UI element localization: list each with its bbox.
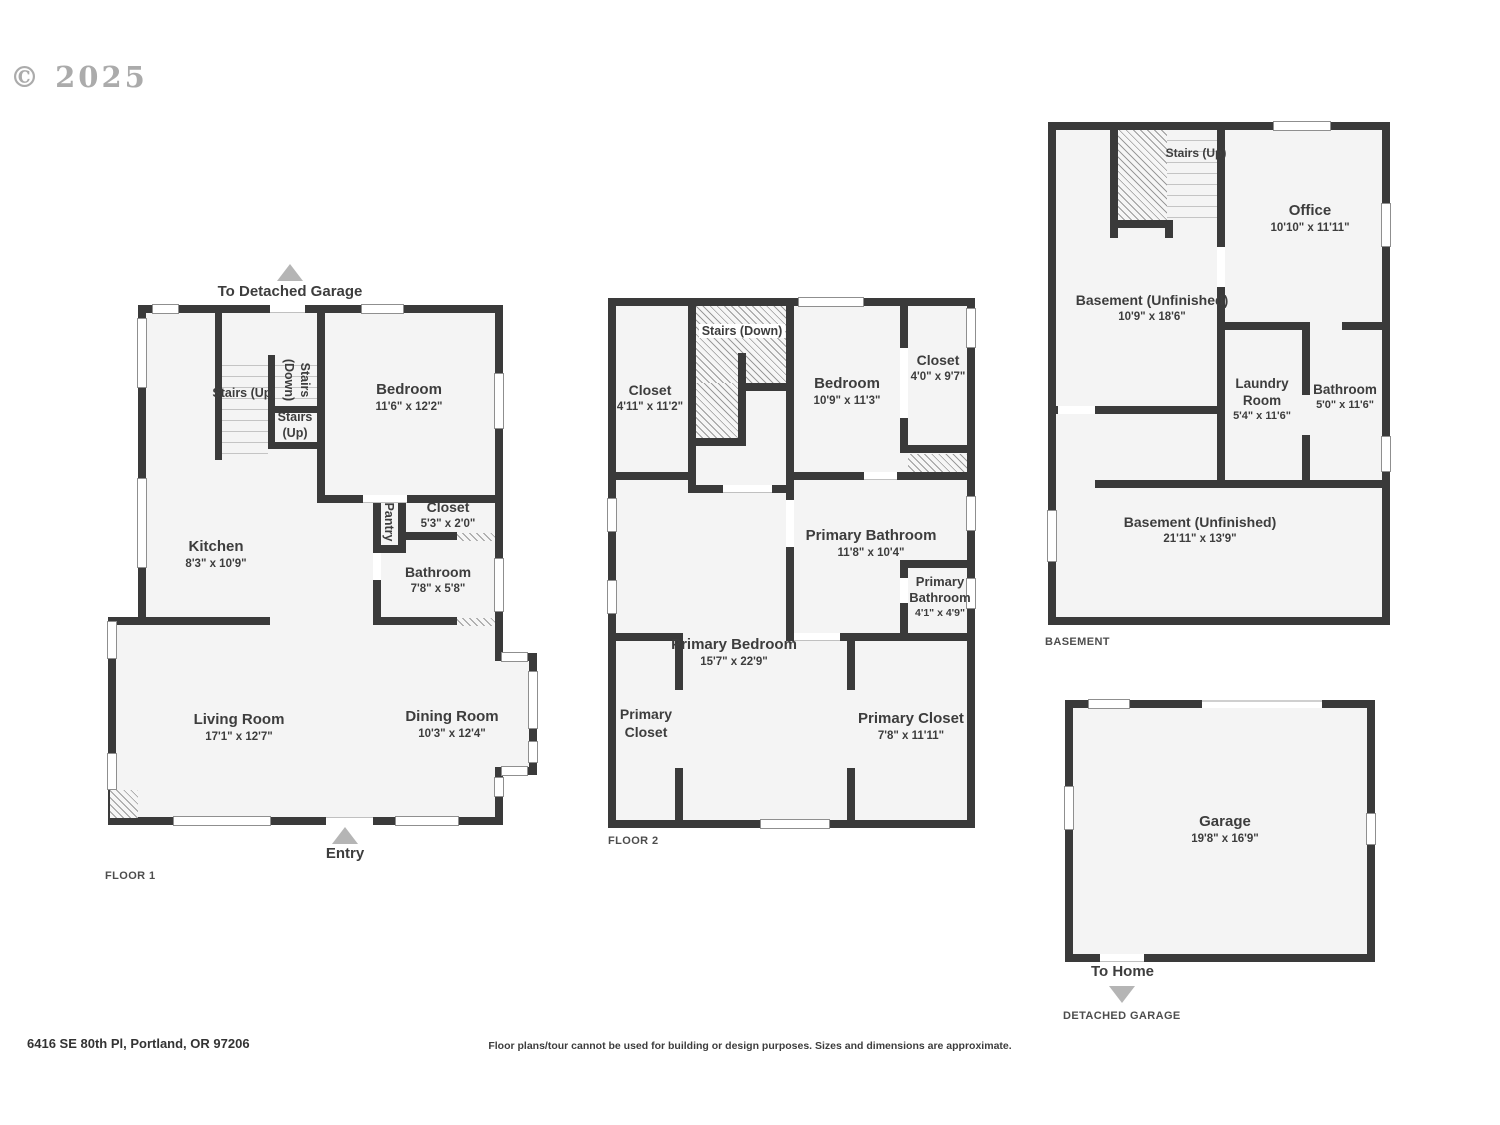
floor1-caption: FLOOR 1	[105, 870, 155, 882]
garage-door-opening	[1202, 700, 1322, 708]
window	[501, 766, 528, 776]
wall	[900, 560, 975, 568]
window	[1064, 786, 1074, 830]
room-label-living-room: Living Room 17'1" x 12'7"	[149, 711, 329, 744]
room-label-pantry: Pantry	[381, 492, 397, 552]
window	[107, 621, 117, 659]
wall	[317, 305, 325, 503]
wall	[608, 472, 696, 480]
wall	[847, 768, 855, 820]
room-label-basement-upper: Basement (Unfinished) 10'9" x 18'6"	[1052, 292, 1252, 324]
floor1-plan: Stairs (Up) Stairs (Down) Stairs (Up) Be…	[108, 305, 538, 825]
copyright-watermark: © 2025	[10, 60, 148, 94]
window	[494, 373, 504, 429]
hatch	[908, 454, 967, 472]
wall	[406, 532, 457, 540]
room-label-stairs-up: Stairs (Up)	[1164, 146, 1228, 162]
door-opening	[270, 305, 305, 313]
window	[528, 741, 538, 763]
wall	[900, 306, 908, 348]
room-label-stairs-up-2: Stairs (Up)	[273, 409, 317, 442]
floor2-plan: Stairs (Down) Closet 4'11" x 11'2" Bedro…	[608, 298, 978, 830]
window	[607, 580, 617, 614]
room-label-basement-lower: Basement (Unfinished) 21'11" x 13'9"	[1098, 514, 1302, 546]
wall	[675, 768, 683, 820]
window	[107, 753, 117, 790]
door-opening	[1100, 954, 1144, 962]
room-label-primary-closet-right: Primary Closet 7'8" x 11'11"	[840, 710, 982, 743]
door-opening	[1217, 247, 1225, 287]
room-label-closet-right: Closet 4'0" x 9'7"	[898, 352, 978, 384]
hatch	[457, 533, 495, 541]
stairs-hatch	[1118, 130, 1167, 220]
wall	[738, 353, 746, 438]
window	[1273, 121, 1331, 131]
wall	[1065, 700, 1073, 962]
wall	[900, 445, 975, 453]
wall	[688, 438, 746, 446]
wall	[1095, 406, 1217, 414]
room-label-kitchen: Kitchen 8'3" x 10'9"	[146, 538, 286, 571]
wall	[847, 639, 855, 690]
window	[494, 777, 504, 797]
window	[607, 498, 617, 532]
room-label-office: Office 10'10" x 11'11"	[1240, 202, 1380, 235]
floor2-caption: FLOOR 2	[608, 835, 658, 847]
entry-label: Entry	[295, 845, 395, 862]
wall	[608, 298, 975, 306]
door-opening	[723, 485, 772, 493]
basement-plan: Stairs (Up) Office 10'10" x 11'11" Basem…	[1048, 122, 1390, 625]
window	[152, 304, 179, 314]
wall	[794, 472, 864, 480]
wall	[786, 547, 794, 635]
wall	[608, 298, 616, 828]
window	[1047, 510, 1057, 562]
window	[1088, 699, 1130, 709]
door-opening	[864, 472, 897, 480]
wall	[1048, 617, 1390, 625]
floor-plan-sheet: © 2025 To Detached Garage	[0, 0, 1500, 1125]
room-label-primary-bedroom: Primary Bedroom 15'7" x 22'9"	[644, 636, 824, 669]
wall	[1382, 122, 1390, 625]
window	[966, 496, 976, 531]
room-label-primary-bathroom-small: Primary Bathroom 4'1" x 4'9"	[902, 574, 978, 620]
wall	[1110, 220, 1173, 228]
fireplace-hatch	[110, 790, 138, 818]
window	[173, 816, 271, 826]
room-label-bedroom: Bedroom 11'6" x 12'2"	[339, 381, 479, 414]
wall	[1095, 480, 1390, 488]
room-label-bathroom: Bathroom 5'0" x 11'6"	[1303, 382, 1387, 413]
to-garage-label: To Detached Garage	[190, 283, 390, 300]
window	[1381, 203, 1391, 247]
window	[798, 297, 864, 307]
wall	[1302, 435, 1310, 480]
to-home-label: To Home	[1065, 963, 1180, 980]
room-label-closet: Closet 5'3" x 2'0"	[396, 499, 500, 531]
stairs-hatch	[696, 383, 738, 438]
wall	[1048, 122, 1390, 130]
window	[1366, 813, 1376, 845]
room-label-stairs-down: Stairs (Down)	[692, 323, 792, 339]
garage-plan: Garage 19'8" x 16'9"	[1065, 700, 1375, 962]
garage-caption: DETACHED GARAGE	[1063, 1010, 1181, 1022]
wall	[268, 442, 317, 449]
wall	[108, 617, 270, 625]
basement-caption: BASEMENT	[1045, 636, 1110, 648]
room-label-primary-bathroom: Primary Bathroom 11'8" x 10'4"	[779, 527, 963, 560]
window	[137, 318, 147, 388]
entry-door-opening	[326, 817, 373, 825]
wall	[1065, 700, 1202, 708]
wall	[688, 485, 723, 493]
property-address: 6416 SE 80th Pl, Portland, OR 97206	[27, 1036, 250, 1051]
wall	[897, 472, 975, 480]
room-label-closet-left: Closet 4'11" x 11'2"	[608, 382, 692, 414]
to-home-arrow-icon	[1109, 986, 1135, 1003]
hatch	[457, 618, 495, 626]
wall	[1110, 130, 1118, 228]
wall	[375, 617, 457, 625]
room-label-bathroom: Bathroom 7'8" x 5'8"	[370, 564, 506, 596]
window	[760, 819, 830, 829]
wall	[1110, 228, 1118, 238]
entry-arrow-icon	[332, 827, 358, 844]
door-opening	[1058, 406, 1095, 414]
room-label-stairs-down: Stairs (Down)	[277, 350, 313, 410]
stair-treads	[222, 355, 268, 460]
wall	[325, 495, 363, 503]
stair-treads	[1167, 130, 1217, 228]
wall	[1342, 322, 1390, 330]
window	[395, 816, 459, 826]
to-garage-arrow-icon	[277, 264, 303, 281]
window	[361, 304, 404, 314]
window	[966, 308, 976, 348]
disclaimer-text: Floor plans/tour cannot be used for buil…	[375, 1040, 1125, 1052]
wall	[1165, 228, 1173, 238]
room-label-dining-room: Dining Room 10'3" x 12'4"	[362, 708, 542, 741]
window	[1381, 436, 1391, 472]
room-label-laundry: Laundry Room 5'4" x 11'6"	[1225, 376, 1299, 424]
room-label-garage: Garage 19'8" x 16'9"	[1145, 813, 1305, 846]
window	[501, 652, 528, 662]
room-label-stairs-up: Stairs (Up)	[212, 385, 276, 401]
room-label-primary-closet-left: Primary Closet	[608, 706, 684, 741]
wall	[1048, 406, 1058, 414]
